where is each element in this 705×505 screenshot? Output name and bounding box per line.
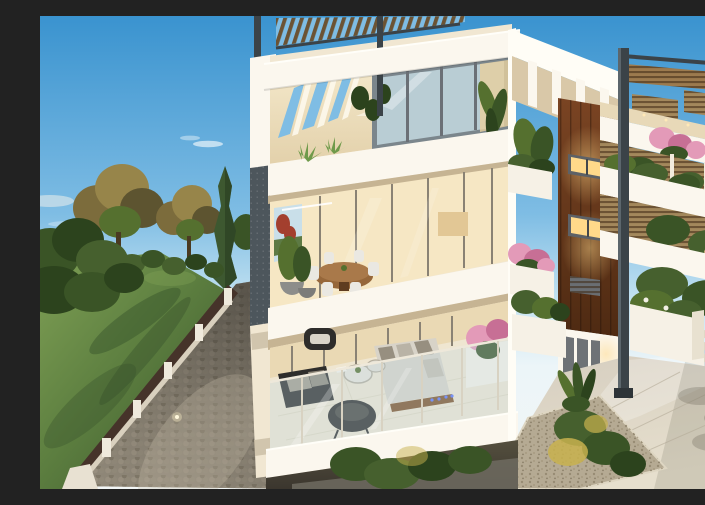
balcony-plants: [646, 215, 690, 245]
white-flowers: [644, 298, 649, 303]
lit-grasses: [584, 415, 608, 433]
cloud: [193, 141, 223, 147]
facade-planter-row: [508, 116, 556, 200]
path-light-glow: [172, 412, 182, 422]
center-bay: [264, 16, 520, 478]
column-base: [614, 388, 633, 398]
lit-grasses: [548, 438, 588, 466]
wicker-armchair: [304, 328, 336, 350]
table-centerpiece: [341, 265, 347, 271]
seat-cushion: [310, 334, 330, 344]
building-rendering: Dusk 3D rendering of a modern white apar…: [40, 16, 705, 489]
cloud: [180, 136, 200, 141]
shrub: [610, 451, 646, 477]
table-base: [339, 282, 349, 291]
white-flowers: [664, 306, 669, 311]
column-highlight: [618, 48, 621, 394]
wall-art: [438, 212, 468, 236]
stair-wall: [692, 310, 704, 360]
